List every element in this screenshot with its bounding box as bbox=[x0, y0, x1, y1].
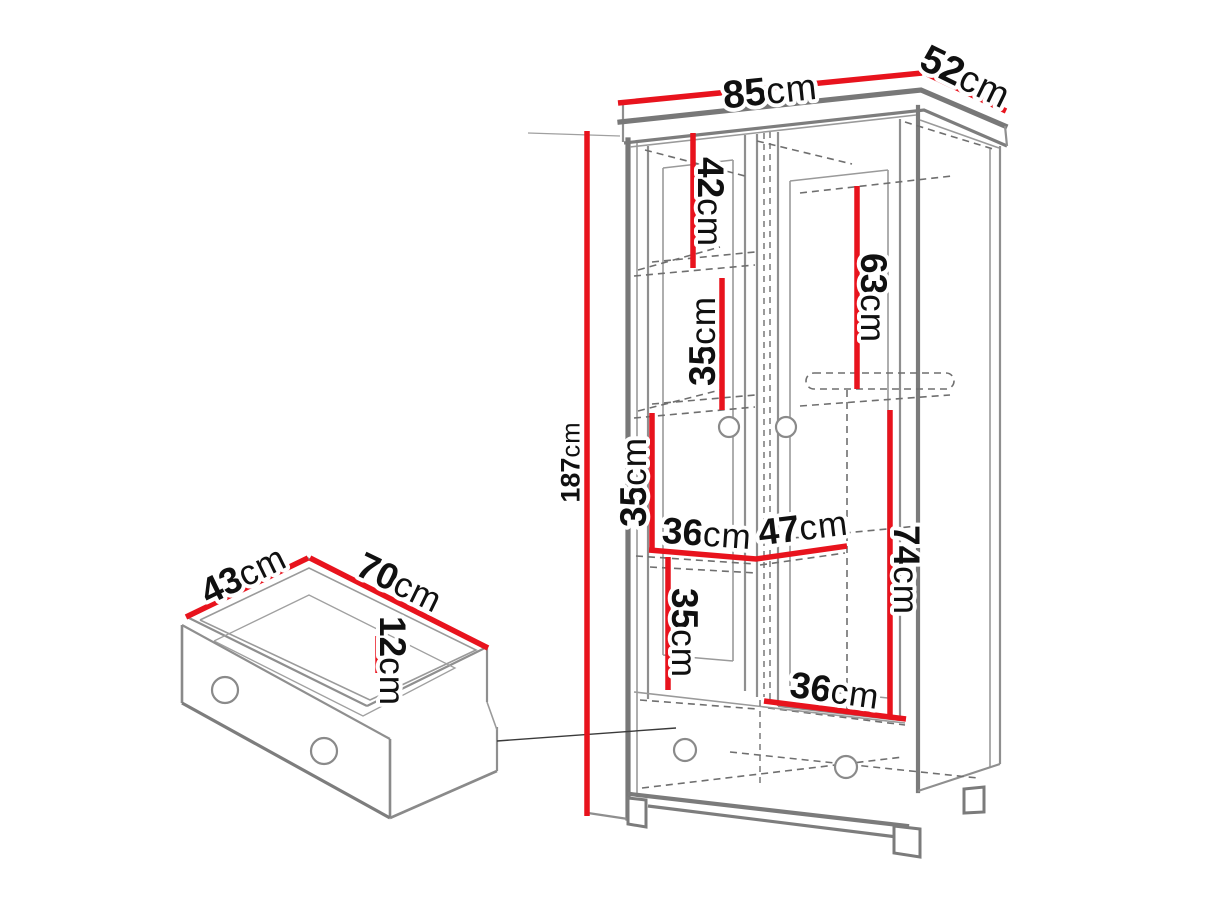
dim-label-int-63: 63cm bbox=[853, 253, 894, 343]
dim-label-drawer-depth: 43cm bbox=[194, 536, 293, 612]
wardrobe-base bbox=[628, 787, 984, 857]
dimension-lines bbox=[186, 73, 1006, 816]
wardrobe-foot-back bbox=[964, 787, 984, 813]
dim-label-int-74: 74cm bbox=[886, 525, 927, 615]
wardrobe-drawer-knob-right bbox=[835, 756, 857, 778]
dim-label-int-35-upper: 35cm bbox=[682, 296, 723, 386]
dim-label-wardrobe-width: 85cm bbox=[721, 65, 820, 118]
wardrobe-center-divider bbox=[757, 132, 770, 700]
dim-label-int-35-mid: 35cm bbox=[613, 437, 654, 527]
wardrobe-drawer-knob-left bbox=[674, 739, 696, 761]
dim-label-int-35-lower: 35cm bbox=[664, 588, 705, 678]
dim-label-drawer-width: 70cm bbox=[350, 544, 449, 620]
dim-label-wardrobe-height: 187cm bbox=[555, 421, 585, 502]
dim-label-int-42: 42cm bbox=[690, 157, 731, 247]
drawer-knob-left bbox=[212, 677, 238, 703]
diagram-canvas: 85cm 52cm 187cm 42cm 63cm 35cm 35cm 36cm… bbox=[0, 0, 1214, 911]
right-door-handle bbox=[776, 417, 796, 437]
dimension-labels: 85cm 52cm 187cm 42cm 63cm 35cm 35cm 36cm… bbox=[194, 37, 1018, 717]
wardrobe-foot-right bbox=[894, 826, 920, 857]
wardrobe-drawing bbox=[528, 90, 1007, 857]
drawer-knob-right bbox=[311, 738, 337, 764]
wardrobe-foot-left bbox=[628, 798, 646, 827]
dimension-diagram: 85cm 52cm 187cm 42cm 63cm 35cm 35cm 36cm… bbox=[0, 0, 1214, 911]
dim-label-wardrobe-depth: 52cm bbox=[913, 37, 1017, 117]
dim-label-int-36-left: 36cm bbox=[661, 510, 754, 557]
left-door-handle bbox=[719, 417, 739, 437]
wardrobe-right-door bbox=[778, 119, 900, 721]
dim-label-drawer-height: 12cm bbox=[372, 616, 413, 706]
